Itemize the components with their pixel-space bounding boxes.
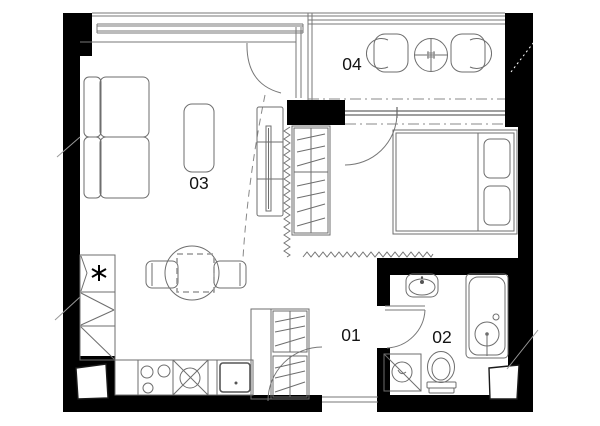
coffee-table [184,104,214,172]
pivot-door-dashed-trace [243,95,265,258]
wall-left [63,13,80,412]
balcony-mullion [308,13,312,100]
hatch-horizontal [303,252,433,257]
living-room-window [80,24,303,42]
dining-chair-left [146,261,178,288]
wall-mid-block [287,100,345,125]
room-label-04: 04 [342,54,362,74]
bedroom-balcony-door-swing-arc [345,115,397,165]
kitchen-cabinet-mid [80,292,115,326]
entry-door-swing-arc [268,347,322,401]
balcony-door-swing-arc [247,43,281,93]
hatch-vertical [284,127,290,257]
bathroom-sink [406,274,438,297]
balcony-chair-right [451,34,492,72]
stove [141,365,170,393]
wall-bathroom-left-upper [377,258,390,306]
bed [393,130,517,234]
bedroom [393,130,517,234]
wall-right-upper [518,127,533,258]
kitchen-counter [115,360,253,395]
wall-bottom-west [80,395,322,412]
shaft-bottom-left [76,364,108,399]
asterisk-snowflake-icon [92,265,106,281]
floor-plan-drawing: 01 02 03 04 [0,0,600,426]
pillow-bottom [484,186,510,225]
shaft-bottom-right [489,365,519,399]
balcony-chair-left [366,34,408,72]
dining-table-dashed-leaf [177,254,214,292]
balcony-railing [308,20,505,24]
room-label-01: 01 [341,325,360,345]
bedroom-glass-wall [345,107,505,118]
entry-door [268,347,378,402]
living-wardrobe [292,126,330,235]
doors [247,27,425,402]
balcony-table [415,39,448,72]
room-label-02: 02 [432,327,451,347]
wall-top-left-pier [63,13,92,56]
bathtub-drain [493,314,499,320]
bathtub [466,274,508,358]
pillow-top [484,139,510,178]
partition-hatches [284,127,433,257]
room-labels: 01 02 03 04 [189,54,451,347]
bathroom-door-swing-arc [387,310,425,348]
hallway-storage [251,309,309,399]
sink-cabinet-cross [173,360,208,395]
wall-right-pier [505,13,533,127]
room-label-03: 03 [189,173,208,193]
balcony [366,34,491,72]
wall-bathroom-top [377,258,508,275]
sofa [84,77,149,198]
kitchen-sink [220,363,250,392]
kitchen-cabinet-low [80,326,115,360]
toilet [427,352,456,394]
balcony-door-living-room [247,27,301,98]
bathroom-door [385,306,425,348]
fridge [80,255,115,292]
dining-set [146,246,246,300]
windows [80,13,505,100]
floor-plan-canvas: 01 02 03 04 [0,0,600,426]
tv-stand [257,107,283,216]
